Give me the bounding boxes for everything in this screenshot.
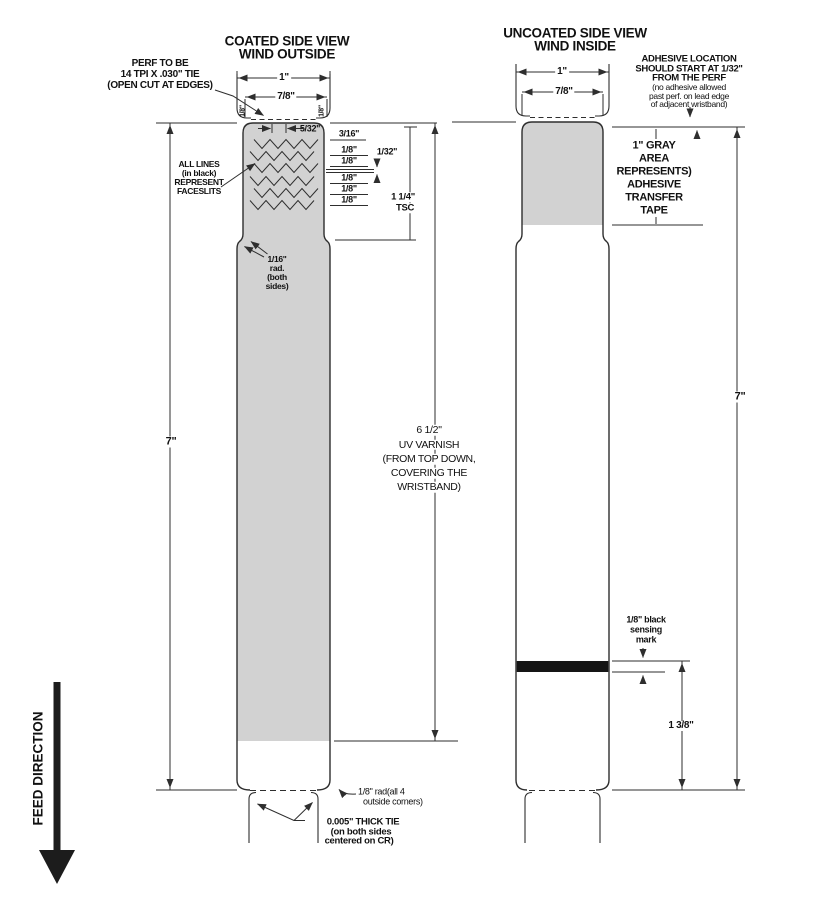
right-title-line2: WIND INSIDE [534,39,615,53]
perf-note-line3: (OPEN CUT AT EDGES) [107,81,212,91]
dim-5-32: 5/32" [300,125,320,134]
sensing-note-line1: 1/8" black [626,616,665,625]
corner-rad-note-line2: outside corners) [363,797,423,806]
left-band-varnish-fill [237,123,330,741]
varnish-note-line4: COVERING THE [389,468,469,479]
edge-tie-left-label: 1/8" [240,105,247,117]
right-next-band-tail [525,793,600,844]
gray-area-note-line2: AREA [639,154,669,165]
sensing-note-line3: mark [636,636,656,645]
faceslits-note-line4: FACESLITS [177,187,221,196]
right-dim-7-8: 7/8" [553,87,574,97]
adhesive-note-line6: of adjacent wristband) [651,100,728,109]
rad-note-line4: sides) [266,282,289,291]
left-dim-1in: 1" [277,73,291,83]
gray-area-note-line3: REPRESENTS) [617,167,692,178]
left-next-band-tail [249,793,318,844]
tsc-dim-line2: TSC [394,203,416,213]
slit-dim-1-8-b: 1/8" [341,156,357,165]
right-dim-7in: 7" [733,392,748,403]
slit-dim-3-16: 3/16" [339,130,359,139]
tie-note-line3: centered on CR) [325,836,394,846]
dim-1-3-8-label: 1 3/8" [666,721,695,731]
right-dim-1in: 1" [555,67,569,77]
left-dim-7in: 7" [164,437,179,448]
left-dim-7-8: 7/8" [275,92,296,102]
gray-area-note-line4: ADHESIVE [627,180,681,191]
varnish-note-line3: (FROM TOP DOWN, [381,454,478,465]
varnish-note-line1: 6 1/2" [414,425,443,436]
dim-1-32: 1/32" [377,148,397,157]
right-extension-lines [612,127,745,790]
slit-dim-1-8-c: 1/8" [341,173,357,182]
wristband-spec-drawing: COATED SIDE VIEW WIND OUTSIDE PERF TO BE… [0,0,815,900]
edge-tie-right-label: 1/8" [319,105,326,117]
perf-note-line1: PERF TO BE [132,59,189,69]
perf-note-line2: 14 TPI X .030" TIE [121,70,200,80]
slit-dim-1-8-d: 1/8" [341,184,357,193]
feed-direction-label: FEED DIRECTION [31,710,46,828]
sensing-note-line2: sensing [630,626,662,635]
varnish-note-line5: WRISTBAND) [395,482,463,493]
adhesive-gray-fill [522,122,603,225]
gray-area-note-line5: TRANSFER [625,193,683,204]
gray-area-note-line1: 1" GRAY [632,141,675,152]
left-title-line2: WIND OUTSIDE [239,47,335,61]
right-view-linework [452,64,745,843]
slit-dim-1-8-e: 1/8" [341,195,357,204]
black-sensing-mark [517,661,609,672]
varnish-note-line2: UV VARNISH [397,439,461,450]
slit-dim-1-8-a: 1/8" [341,145,357,154]
gray-area-note-line6: TAPE [640,206,667,217]
tsc-dim-line1: 1 1/4" [389,192,417,202]
adhesive-arrows [690,107,697,139]
